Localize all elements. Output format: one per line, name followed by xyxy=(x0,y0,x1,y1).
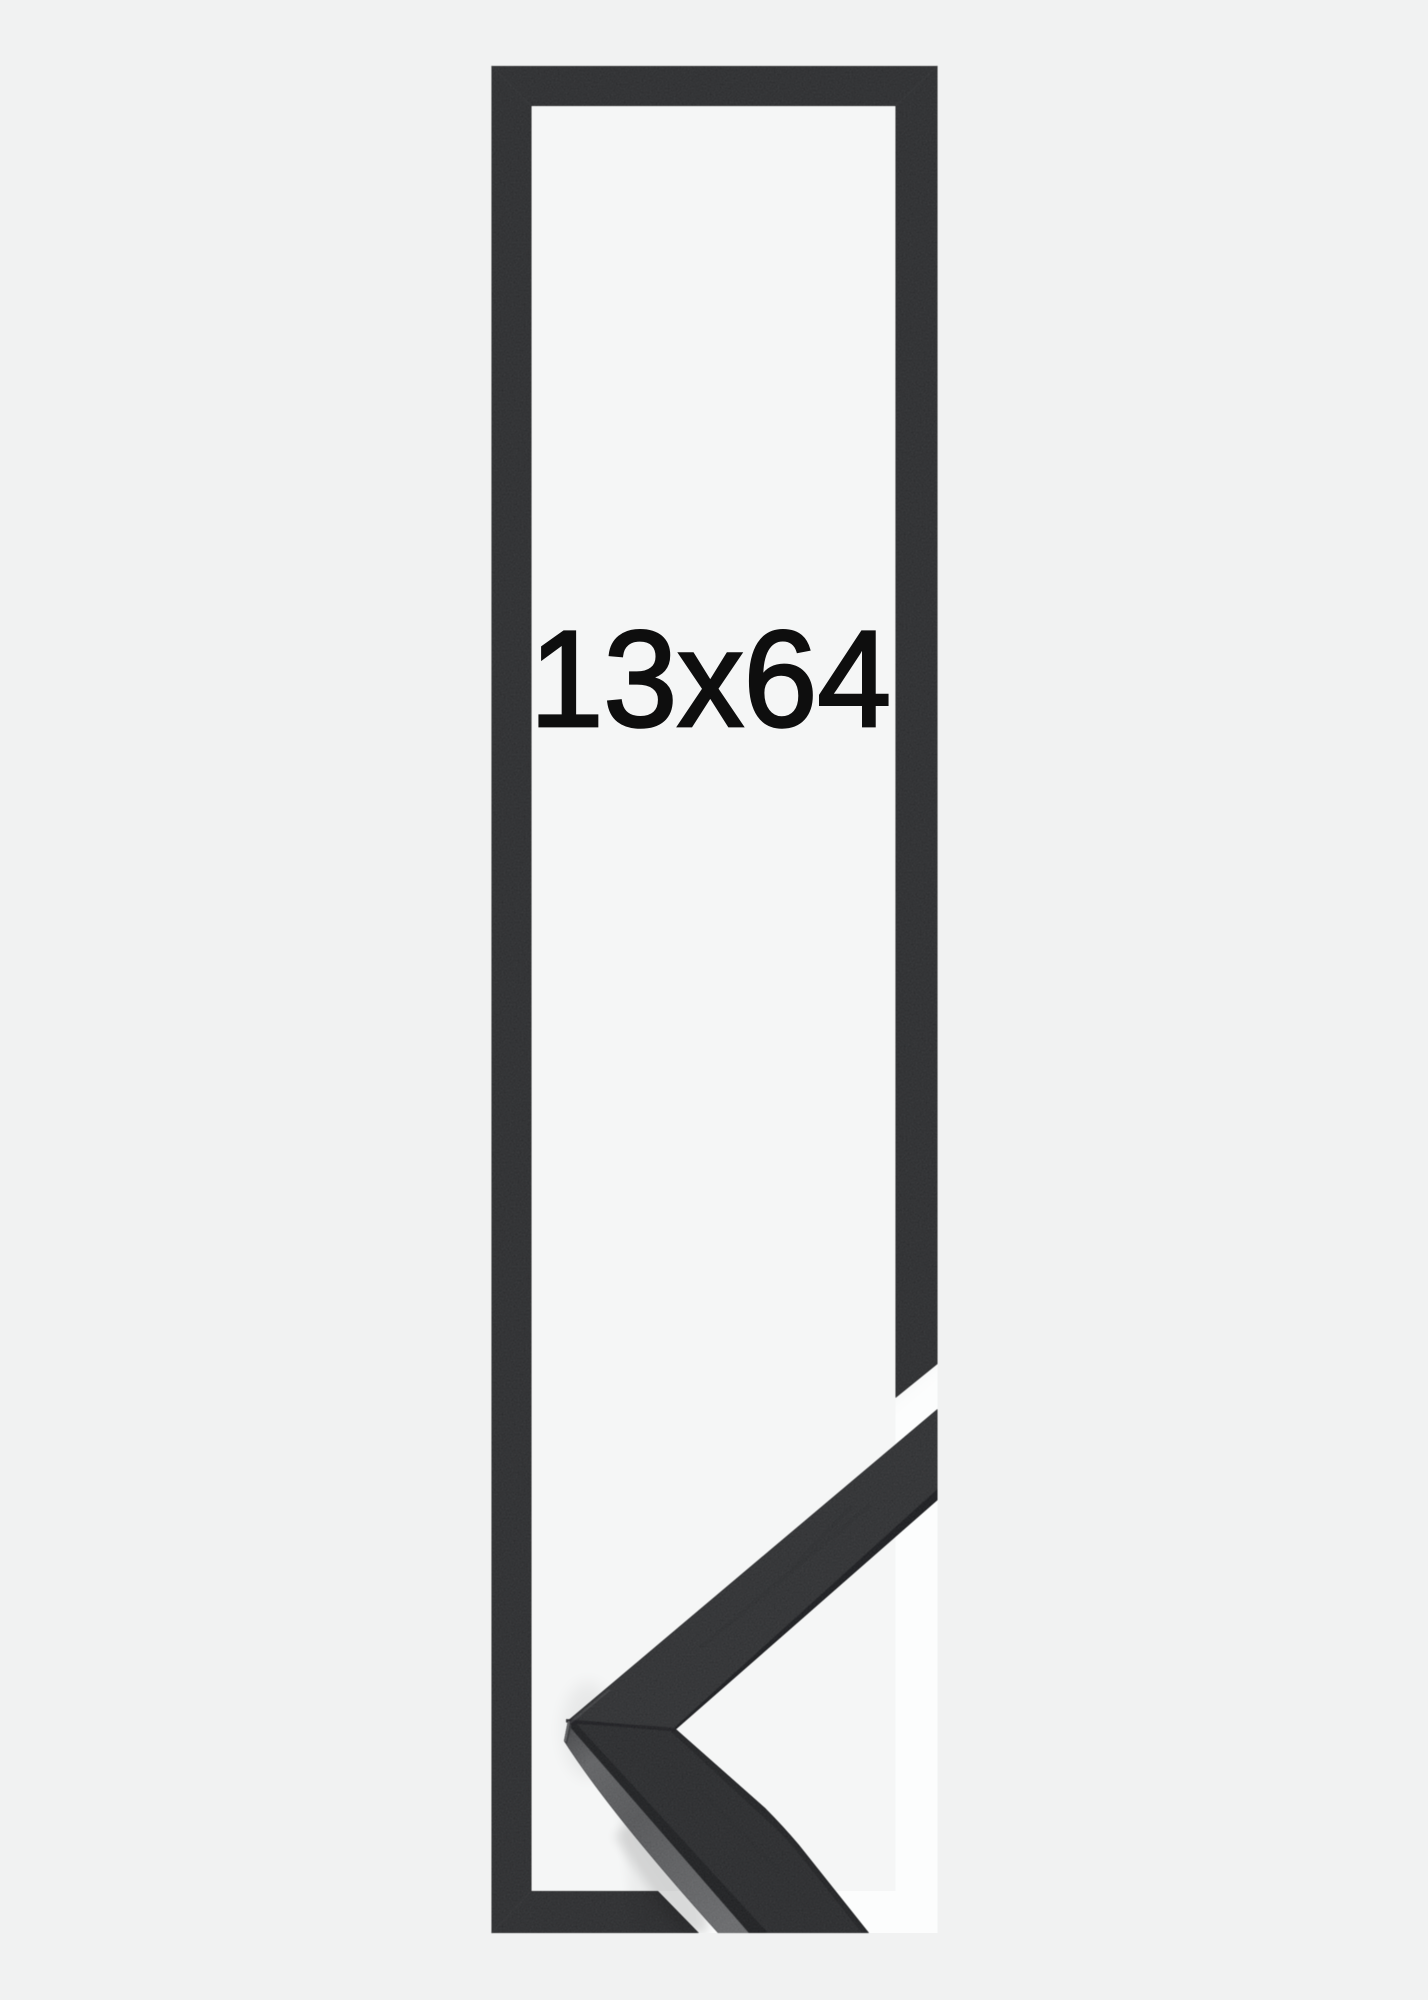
svg-text:13x64: 13x64 xyxy=(530,603,891,756)
